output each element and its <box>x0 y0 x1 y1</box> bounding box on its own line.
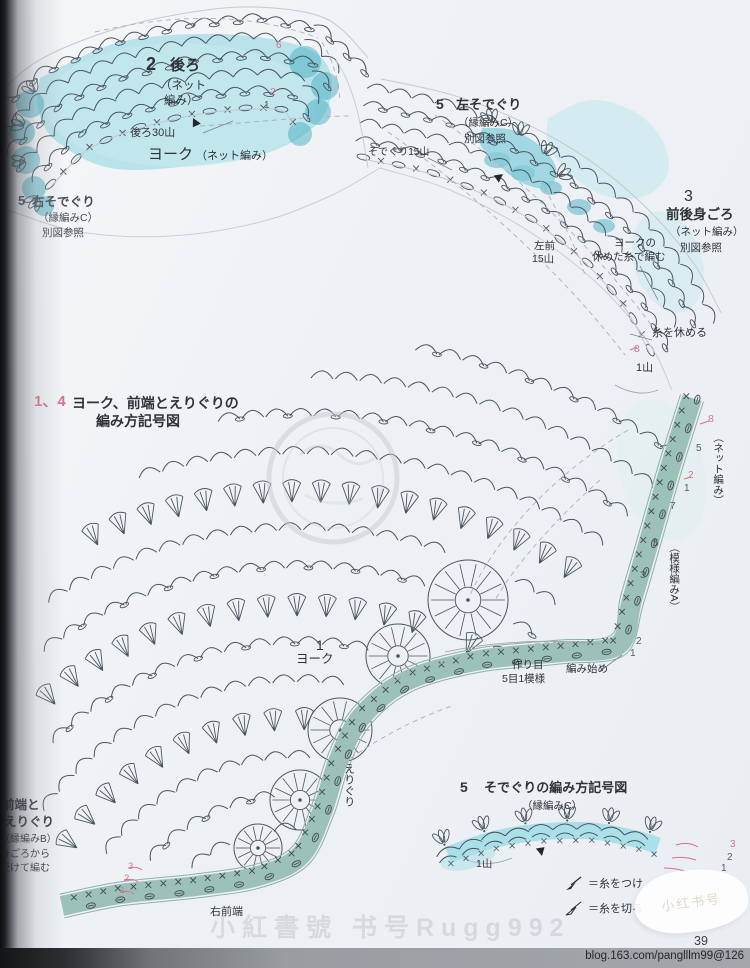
front-edge-line5: 続けて編む <box>0 863 50 875</box>
left-row-3: 3 <box>128 862 133 873</box>
pattern-row-5: 5 <box>653 538 659 550</box>
pattern-row-7: 7 <box>670 501 676 513</box>
page-number: 39 <box>694 934 708 948</box>
piece3-ref: 別図参照 <box>680 242 722 254</box>
yoke1-name: ヨーク <box>296 652 334 666</box>
left-front-peaks: 15山 <box>532 253 554 265</box>
legend-attach-label: ＝糸をつけ <box>588 878 643 891</box>
pattern-a-vertical: （模様編みA） <box>668 542 680 612</box>
rest-yarn-label: 糸を休める <box>652 327 707 340</box>
start-knitting-label: 編み始め <box>566 663 608 675</box>
yoke-stitch: （ネット編み） <box>196 150 273 163</box>
heading-line1: ヨーク、前端とえりぐりの <box>72 395 239 411</box>
net-row-2: 2 <box>688 470 694 482</box>
blog-url: blog.163.com/panglllm99@126 <box>585 950 744 962</box>
front-edge-line4: 身ごろから <box>0 849 50 861</box>
yoke-rest-line1: ヨークの <box>614 237 656 249</box>
right-armhole-number: 5 <box>18 194 25 209</box>
piece3-name: 前後身ごろ <box>666 207 734 223</box>
back-row-6: 6 <box>276 40 282 52</box>
heading-line2: 編み方記号図 <box>96 413 180 429</box>
yoke1-number: 1 <box>316 637 324 653</box>
sticker-text: 小红书号 <box>660 887 722 914</box>
attach-yarn-arrow-icon <box>564 876 584 892</box>
left-armhole-name: 左そでぐり <box>456 98 521 113</box>
piece2-name: 後ろ <box>170 57 200 74</box>
back-row-1: 1 <box>264 100 270 112</box>
piece3-stitch: （ネット編み） <box>670 226 744 238</box>
heading-number: 1、4 <box>34 393 66 410</box>
back-30-peaks: 後ろ30山 <box>130 127 175 140</box>
left-armhole-number: 5 <box>436 96 444 112</box>
neckline-vertical: えりぐり <box>342 763 355 807</box>
left-front-label: 左前 <box>534 240 555 252</box>
mini-row-2: 2 <box>727 852 733 864</box>
rest-row-8: 8 <box>634 343 640 355</box>
right-armhole-ref: 別図参照 <box>42 227 84 239</box>
net-row-1: 1 <box>684 483 690 495</box>
crochet-diagram-art <box>0 0 750 968</box>
piece2-stitch-2: 編み） <box>164 95 199 108</box>
yoke-label: ヨーク <box>148 146 193 163</box>
left-armhole-ref: 別図参照 <box>464 133 506 145</box>
piece2-stitch-1: （ネット <box>160 80 206 93</box>
mini-one-yama: 1山 <box>476 858 492 870</box>
mini-row-3: 3 <box>730 839 736 851</box>
back-row-2: 2 <box>270 87 276 99</box>
left-row-2: 2 <box>124 874 129 885</box>
legend-cut-row: ＝糸を切る <box>564 901 643 917</box>
net-stitch-vertical: （ネット編み） <box>712 432 724 506</box>
front-edge-line1: 前端と <box>2 798 40 812</box>
start-row-1: 1 <box>630 648 636 660</box>
legend-attach-row: ＝糸をつけ <box>564 876 643 892</box>
front-edge-line2: えりぐり <box>4 815 54 829</box>
net-row-8: 8 <box>708 413 714 425</box>
yoke-rest-line2: 休めた糸で編む <box>592 251 666 263</box>
net-row-5: 5 <box>696 443 702 455</box>
mini-number: 5 <box>460 779 468 795</box>
start-row-2: 2 <box>636 636 642 648</box>
right-armhole-stitch: （縁編みC） <box>38 212 98 224</box>
watermark-text: 小紅書號 书号Rugg992 <box>210 908 571 944</box>
foundation-pattern: 5目1模様 <box>502 673 545 685</box>
right-armhole-name: 右そでぐり <box>32 195 95 209</box>
front-edge-line3: （縁編みB） <box>0 834 57 846</box>
mini-stitch: （縁編みC） <box>522 800 582 812</box>
left-row-1: 1 <box>120 886 125 897</box>
armhole-15-peaks: そでぐり15山 <box>368 147 429 159</box>
piece2-number: 2 <box>146 54 156 75</box>
foundation-label: 作り目 <box>512 659 544 671</box>
mini-title: そでぐりの編み方記号図 <box>484 781 627 796</box>
footer-band: blog.163.com/panglllm99@126 <box>0 948 750 968</box>
piece3-number: 3 <box>684 188 693 206</box>
pattern-row-3: 3 <box>640 570 646 582</box>
left-armhole-stitch: （縁編みC） <box>458 117 518 129</box>
one-yama-label: 1山 <box>636 362 653 375</box>
book-page: 2 後ろ （ネット 編み） 後ろ30山 ヨーク （ネット編み） 5 右そでぐり … <box>0 0 750 968</box>
